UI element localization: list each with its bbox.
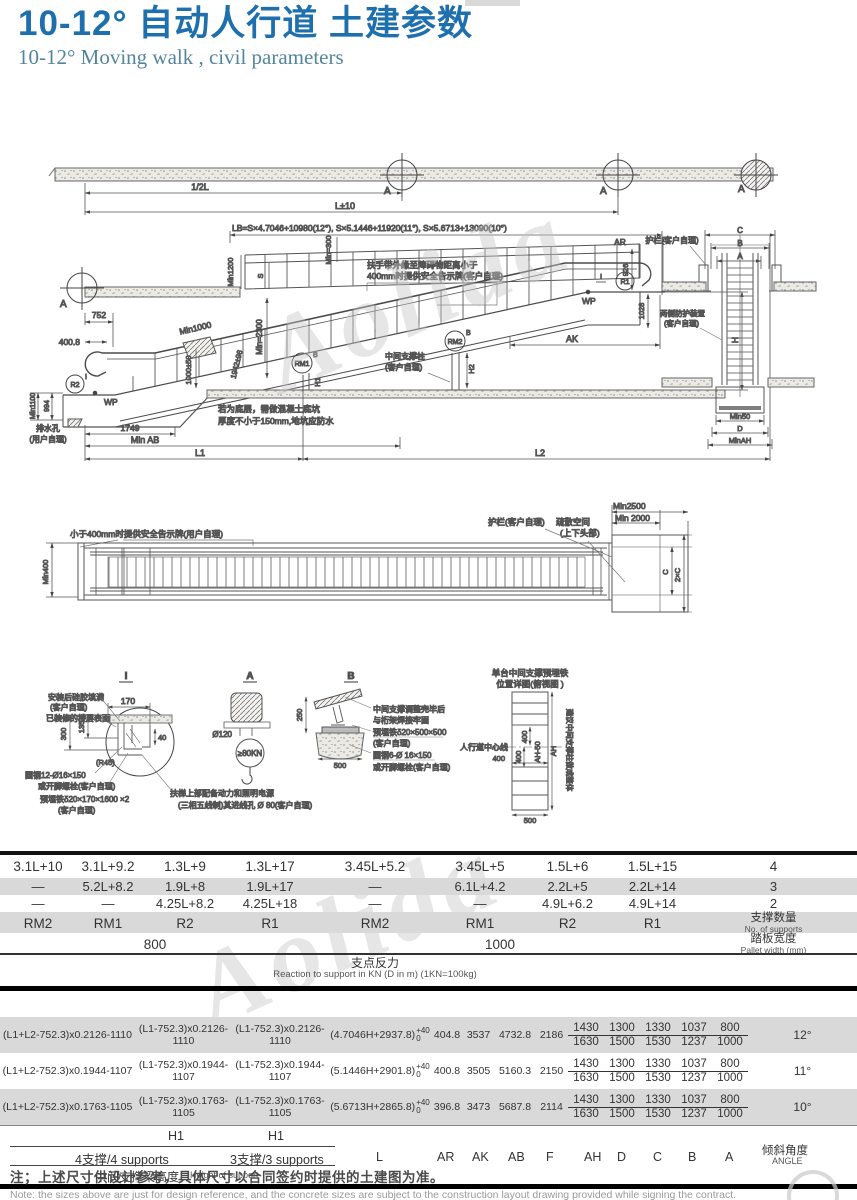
dim-926: 926 bbox=[621, 264, 630, 277]
evac-label-1: 疏散空间 bbox=[556, 517, 590, 527]
detail-b: B 250 500 中间支撑调整完毕后 与桁架焊接牢固 预埋铁δ20×500×5… bbox=[295, 671, 451, 772]
table-row: 3.1L+10 3.1L+9.2 1.3L+9 1.3L+17 3.45L+5.… bbox=[0, 851, 857, 878]
table-row-supports: RM2 RM1 R2 R1 RM2 RM1 R2 R1 支撑数量 No. of … bbox=[0, 912, 857, 933]
cell: 1.9L+8 bbox=[140, 879, 230, 894]
formula: (L1+L2-752.3)x0.2126-1110 bbox=[0, 1029, 135, 1041]
page-subtitle: 10-12° Moving walk , civil parameters bbox=[18, 45, 473, 70]
a-marker-label: A bbox=[60, 299, 67, 310]
reaction-en: Reaction to support in KN (D in m) (1KN=… bbox=[0, 969, 750, 981]
plate-note: 预埋铁δ20×170×1600 ×2 bbox=[40, 794, 130, 804]
dim-half-l: 1/2L bbox=[191, 182, 209, 192]
dim-l2: L2 bbox=[535, 448, 545, 458]
top-right-bar bbox=[465, 0, 520, 6]
cell: RM2 bbox=[310, 916, 440, 931]
formula: (5.6713H+2865.8) bbox=[330, 1101, 415, 1113]
r2-marker: R2 bbox=[71, 382, 80, 389]
dim-h1: H1 bbox=[313, 377, 322, 387]
pallet-1000: 1000 bbox=[310, 937, 690, 952]
left-overhead-slab bbox=[60, 267, 240, 310]
cell: 3.1L+9.2 bbox=[76, 859, 140, 874]
side-protection-1: 两侧防护装置 bbox=[660, 308, 705, 318]
silicone-note-2: (客户自理) bbox=[50, 702, 88, 712]
dim-min1200: Min1200 bbox=[226, 258, 235, 287]
power-note-2: (三相五线制)其进线孔 Ø 80(客户自理) bbox=[178, 800, 313, 810]
cell: — bbox=[76, 896, 140, 911]
dim-ak: AK bbox=[566, 334, 578, 344]
h1-label: H1 bbox=[168, 1129, 184, 1143]
table-row-width: 800 1000 踏板宽度 Pallet width (mm) bbox=[0, 933, 857, 953]
wp-lower: WP bbox=[104, 397, 118, 407]
cell: 1.5L+6 bbox=[520, 859, 615, 874]
fraction: 13001500 bbox=[604, 1022, 640, 1049]
pallet-width-label: 踏板宽度 Pallet width (mm) bbox=[690, 933, 857, 955]
c-label: C bbox=[653, 1150, 662, 1164]
cell: 2.2L+14 bbox=[615, 879, 690, 894]
fraction: 10371237 bbox=[676, 1094, 712, 1121]
cell: RM1 bbox=[440, 916, 520, 931]
dim-min300: Min=300 bbox=[324, 236, 333, 265]
dim-752: 752 bbox=[92, 310, 106, 320]
weld-note-1: 中间支撑调整完毕后 bbox=[373, 704, 445, 714]
cell: 1.9L+17 bbox=[230, 879, 310, 894]
formula: (L1+L2-752.3)x0.1944-1107 bbox=[0, 1065, 135, 1077]
note-zh: 注；上述尺寸供设计参考，具体尺寸以合同签约时提供的土建图为准。 bbox=[10, 1166, 855, 1186]
page-title: 10-12° 自动人行道 土建参数 bbox=[18, 4, 473, 44]
dim-min2000: Min 2000 bbox=[615, 513, 650, 523]
cell: — bbox=[0, 896, 76, 911]
value: 2186 bbox=[535, 1029, 568, 1041]
wp-upper: WP bbox=[582, 296, 596, 306]
formula: (L1-752.3)x0.2126-1110 bbox=[135, 1023, 232, 1047]
supports-zh: 支撑数量 bbox=[751, 912, 797, 924]
value: 4732.8 bbox=[495, 1029, 535, 1041]
plan-sign-note: 小于400mm时提供安全告示牌(用户自理) bbox=[70, 529, 223, 539]
dim-ah50: AH-50 bbox=[533, 741, 542, 762]
cell: RM1 bbox=[76, 916, 140, 931]
page: 10-12° 自动人行道 土建参数 10-12° Moving walk , c… bbox=[0, 0, 857, 1200]
lower-floor-slab bbox=[207, 390, 725, 398]
dim-s: S bbox=[256, 273, 265, 278]
dim-400-b: 400 bbox=[514, 751, 523, 764]
silicone-note-1: 安装后硅胶填满 bbox=[48, 692, 104, 702]
cell: RM2 bbox=[0, 916, 76, 931]
plate-side-note: 建议中间支撑柱做成整体 bbox=[565, 709, 575, 792]
side-protection-2: (客户自理) bbox=[664, 318, 699, 328]
plate-note-b: 预埋铁δ20×500×500 bbox=[373, 727, 447, 737]
cell: — bbox=[310, 896, 440, 911]
reaction-header: 支点反力 Reaction to support in KN (D in m) … bbox=[0, 953, 857, 991]
fraction: 13301530 bbox=[640, 1094, 676, 1121]
dim-250: 250 bbox=[295, 709, 304, 722]
mid-column-label-1: 中间支撑柱 bbox=[385, 351, 425, 361]
dim-c-plan: C bbox=[661, 569, 670, 575]
note-block: 注；上述尺寸供设计参考，具体尺寸以合同签约时提供的土建图为准。 Note: th… bbox=[10, 1166, 855, 1200]
value: 3505 bbox=[462, 1065, 495, 1077]
rm1-b-marker: B bbox=[313, 352, 318, 359]
load-label: ≥80KN bbox=[238, 749, 263, 758]
pallet-zh: 踏板宽度 bbox=[751, 933, 797, 945]
dim-h2: H2 bbox=[467, 364, 476, 374]
tol-bot: 0 bbox=[416, 1034, 420, 1043]
formula: (L1-752.3)x0.1944-1107 bbox=[135, 1059, 232, 1083]
f-label: F bbox=[546, 1150, 554, 1164]
cell: 3.45L+5 bbox=[440, 859, 520, 874]
table-row: — — 4.25L+8.2 4.25L+18 — — 4.9L+6.2 4.9L… bbox=[0, 895, 857, 912]
pit-note-2: 厚度不小于150mm,地坑应防水 bbox=[218, 416, 334, 426]
value: 2150 bbox=[535, 1065, 568, 1077]
guardrail-label: 护栏(客户自理) bbox=[645, 235, 699, 245]
plate-owner: (客户自理) bbox=[58, 805, 96, 815]
tol-bot: 0 bbox=[416, 1070, 420, 1079]
r1-marker: R1 bbox=[621, 279, 630, 286]
cell: R2 bbox=[520, 916, 615, 931]
formula-tol: (5.6713H+2865.8) +40 0 bbox=[328, 1099, 432, 1115]
rm2-label: RM2 bbox=[448, 339, 463, 346]
dim-300: 300 bbox=[59, 728, 68, 741]
ab-label: AB bbox=[508, 1150, 525, 1164]
parameter-table: 3.1L+10 3.1L+9.2 1.3L+9 1.3L+17 3.45L+5.… bbox=[0, 851, 857, 1189]
cell: 4.9L+6.2 bbox=[520, 896, 615, 911]
supports-count-label: 支撑数量 No. of supports bbox=[690, 912, 857, 934]
rm1-label: RM1 bbox=[295, 361, 310, 368]
formula: (4.7046H+2937.8) bbox=[330, 1029, 415, 1041]
plan-body bbox=[78, 543, 612, 600]
dim-1000-50: 1000±50 bbox=[184, 355, 193, 384]
dim-c: C bbox=[737, 226, 743, 235]
cell: 4 bbox=[690, 859, 857, 874]
ak-label: AK bbox=[472, 1150, 489, 1164]
title-sub: 土建参数 bbox=[329, 4, 473, 43]
formula: (L1+L2-752.3)x0.1763-1105 bbox=[0, 1101, 135, 1113]
cross-section: C B A 护栏(客户自理) 两侧防护装置 (客户自理) bbox=[645, 226, 816, 449]
d-label: D bbox=[617, 1150, 626, 1164]
value: 5160.3 bbox=[495, 1065, 535, 1077]
page-header: 10-12° 自动人行道 土建参数 10-12° Moving walk , c… bbox=[18, 4, 473, 70]
formula-row-11: (L1+L2-752.3)x0.1944-1107 (L1-752.3)x0.1… bbox=[0, 1053, 857, 1089]
dim-ar: AR bbox=[614, 237, 626, 247]
a-marker-label: A bbox=[384, 186, 391, 197]
cell: 4.25L+18 bbox=[230, 896, 310, 911]
value: 5687.8 bbox=[495, 1101, 535, 1113]
plate-title-2: 位置详图(俯视图 ) bbox=[496, 679, 564, 689]
dim-min400: Min400 bbox=[41, 560, 50, 585]
detail-i-title: I bbox=[125, 671, 128, 682]
formula: (5.1446H+2901.8) bbox=[330, 1065, 415, 1077]
formula-tol: (5.1446H+2901.8) +40 0 bbox=[328, 1063, 432, 1079]
cell: 1.3L+9 bbox=[140, 859, 230, 874]
plan-guardrail-label: 护栏(客户自理) bbox=[488, 517, 545, 527]
dim-l1: L1 bbox=[195, 448, 205, 458]
detail-a-title: A bbox=[246, 671, 253, 682]
handrail-note-2: 400mm时提供安全告示牌(客户自理) bbox=[367, 271, 503, 281]
cell: 6.1L+4.2 bbox=[440, 879, 520, 894]
pallet-800: 800 bbox=[0, 937, 310, 952]
dim-min-ah: MinAH bbox=[729, 436, 752, 445]
dim-min2500: Min2500 bbox=[613, 501, 646, 511]
centerline-label: 人行道中心线 bbox=[460, 742, 508, 752]
cell: — bbox=[0, 879, 76, 894]
cell: R1 bbox=[230, 916, 310, 931]
weld-note-2: 与桁架焊接牢固 bbox=[373, 715, 429, 725]
fraction: 13301530 bbox=[640, 1022, 676, 1049]
cell: 4.25L+8.2 bbox=[140, 896, 230, 911]
ah-label: AH bbox=[584, 1150, 601, 1164]
pit-note-1: 若为底层，需做混凝土底坑 bbox=[218, 404, 321, 414]
dim-l: L±10 bbox=[335, 201, 355, 211]
table-row: — 5.2L+8.2 1.9L+8 1.9L+17 — 6.1L+4.2 2.2… bbox=[0, 878, 857, 895]
formula-row-12: (L1+L2-752.3)x0.2126-1110 (L1-752.3)x0.2… bbox=[0, 1017, 857, 1053]
dim-min50: Min50 bbox=[730, 412, 750, 421]
bolt-note-b: 或开脚螺栓(客户自理) bbox=[373, 762, 451, 772]
value: 396.8 bbox=[432, 1101, 462, 1113]
angle-en: ANGLE bbox=[772, 1156, 803, 1166]
dim-400-c: 400 bbox=[492, 754, 505, 763]
plate-detail: 单台中间支撑预埋铁 位置详图(俯视图 ) 人行道中心线 400 400 400 bbox=[460, 668, 575, 825]
rod-note: 圆钢12-Ø16×150 bbox=[25, 770, 86, 780]
dim-ah-plate: AH bbox=[549, 746, 558, 756]
plate-title-1: 单台中间支撑预埋铁 bbox=[492, 668, 569, 678]
formula: (L1-752.3)x0.1944-1107 bbox=[232, 1059, 328, 1083]
left-dims bbox=[30, 313, 113, 420]
cell: 1.3L+17 bbox=[230, 859, 310, 874]
dim-994: 994 bbox=[44, 400, 51, 412]
detail-i: I 170 135 300 40 (R45) 安装后硅胶填满 (客户自 bbox=[25, 671, 313, 815]
pallet-en: Pallet width (mm) bbox=[741, 945, 807, 955]
detail-b-title: B bbox=[347, 671, 354, 682]
value: 2114 bbox=[535, 1101, 568, 1113]
elevation-view: A A A 1/2L L±10 LB=S×4.7046+10980(12°), … bbox=[29, 153, 778, 461]
dim-d: D bbox=[737, 424, 743, 433]
cell: 2 bbox=[690, 896, 857, 911]
i-marker: I bbox=[600, 272, 602, 281]
formula: (L1-752.3)x0.1763-1105 bbox=[135, 1095, 232, 1119]
plate-owner-b: (客户自理) bbox=[373, 738, 411, 748]
formula: (L1-752.3)x0.2126-1110 bbox=[232, 1023, 328, 1047]
angle-value: 10° bbox=[748, 1100, 857, 1114]
cell: 1.5L+15 bbox=[615, 859, 690, 874]
value: 404.8 bbox=[432, 1029, 462, 1041]
title-main: 10-12° 自动人行道 bbox=[18, 4, 318, 43]
evac-label-2: (上下头部) bbox=[560, 528, 600, 538]
handrail-note-1: 扶手带外缘至障碍物距离小于 bbox=[367, 260, 478, 270]
a-marker-label: A bbox=[600, 186, 607, 197]
cell: 3 bbox=[690, 879, 857, 894]
technical-drawing: A A A 1/2L L±10 LB=S×4.7046+10980(12°), … bbox=[0, 85, 857, 855]
formula-row-10: (L1+L2-752.3)x0.1763-1105 (L1-752.3)x0.1… bbox=[0, 1089, 857, 1125]
dim-400-8: 400.8 bbox=[59, 337, 81, 347]
note-en: Note: the sizes above are just for desig… bbox=[10, 1189, 855, 1200]
dim-500-plate: 500 bbox=[524, 816, 537, 825]
r2-i-sup: I bbox=[85, 374, 87, 381]
fraction: 14301630 bbox=[568, 1094, 604, 1121]
angle-value: 11° bbox=[748, 1064, 857, 1078]
l-label: L bbox=[376, 1150, 383, 1164]
lb-formula: LB=S×4.7046+10980(12°), S×5.1446+11920(1… bbox=[232, 223, 507, 233]
cell: — bbox=[440, 896, 520, 911]
fraction: 10371237 bbox=[676, 1058, 712, 1085]
power-note-1: 扶梯上部配备动力和照明电源 bbox=[170, 788, 274, 798]
fraction: 8001000 bbox=[712, 1022, 748, 1049]
dim-2xc: 2×C bbox=[673, 567, 682, 582]
section-truss bbox=[712, 235, 768, 397]
drain-label-2: (用户自理) bbox=[29, 434, 67, 444]
dim-min1100: Min1100 bbox=[30, 393, 37, 419]
cell: 4.9L+14 bbox=[615, 896, 690, 911]
mid-column-label-2: (客户自理) bbox=[385, 362, 423, 372]
dim-500: 500 bbox=[334, 761, 347, 770]
cell: 3.1L+10 bbox=[0, 859, 76, 874]
h1-label: H1 bbox=[268, 1129, 284, 1143]
dim-min-ab: Min AB bbox=[131, 435, 160, 445]
dim-400-a: 400 bbox=[520, 731, 529, 744]
dim-1749: 1749 bbox=[121, 423, 140, 433]
fraction: 14301630 bbox=[568, 1058, 604, 1085]
a-label: A bbox=[725, 1150, 733, 1164]
fraction: 8001000 bbox=[712, 1058, 748, 1085]
cell: 5.2L+8.2 bbox=[76, 879, 140, 894]
fraction: 13001500 bbox=[604, 1058, 640, 1085]
fraction: 10371237 bbox=[676, 1022, 712, 1049]
dim-1028: 1028 bbox=[637, 303, 646, 320]
cell: — bbox=[310, 879, 440, 894]
b-label: B bbox=[688, 1150, 696, 1164]
fraction: 8001000 bbox=[712, 1094, 748, 1121]
value: 3473 bbox=[462, 1101, 495, 1113]
dim-d120: Ø120 bbox=[212, 730, 232, 739]
cell: 2.2L+5 bbox=[520, 879, 615, 894]
a-marker-label: A bbox=[738, 184, 745, 195]
dim-170: 170 bbox=[121, 696, 135, 706]
rod-note-b: 圆钢6-Ø 16×150 bbox=[373, 750, 432, 760]
drain-label-1: 排水孔 bbox=[36, 423, 60, 433]
dim-min1000: Min1000 bbox=[178, 319, 212, 336]
dim-40: 40 bbox=[158, 733, 166, 742]
detail-a: A Ø120 ≥80KN bbox=[212, 671, 270, 784]
formula-tol: (4.7046H+2937.8) +40 0 bbox=[328, 1027, 432, 1043]
cell: R2 bbox=[140, 916, 230, 931]
fraction: 14301630 bbox=[568, 1022, 604, 1049]
fraction: 13301530 bbox=[640, 1058, 676, 1085]
cell: R1 bbox=[615, 916, 690, 931]
ar-label: AR bbox=[437, 1150, 454, 1164]
cell: 3.45L+5.2 bbox=[310, 859, 440, 874]
formula: (L1-752.3)x0.1763-1105 bbox=[232, 1095, 328, 1119]
fraction: 13001500 bbox=[604, 1094, 640, 1121]
tol-bot: 0 bbox=[416, 1106, 420, 1115]
angle-value: 12° bbox=[748, 1028, 857, 1042]
plan-view: 小于400mm时提供安全告示牌(用户自理) bbox=[41, 501, 692, 612]
bolt-note: 或开脚螺栓(客户自理) bbox=[38, 781, 116, 791]
rm2-b-marker: B bbox=[466, 330, 471, 337]
reaction-zh: 支点反力 bbox=[0, 957, 750, 969]
value: 400.8 bbox=[432, 1065, 462, 1077]
value: 3537 bbox=[462, 1029, 495, 1041]
